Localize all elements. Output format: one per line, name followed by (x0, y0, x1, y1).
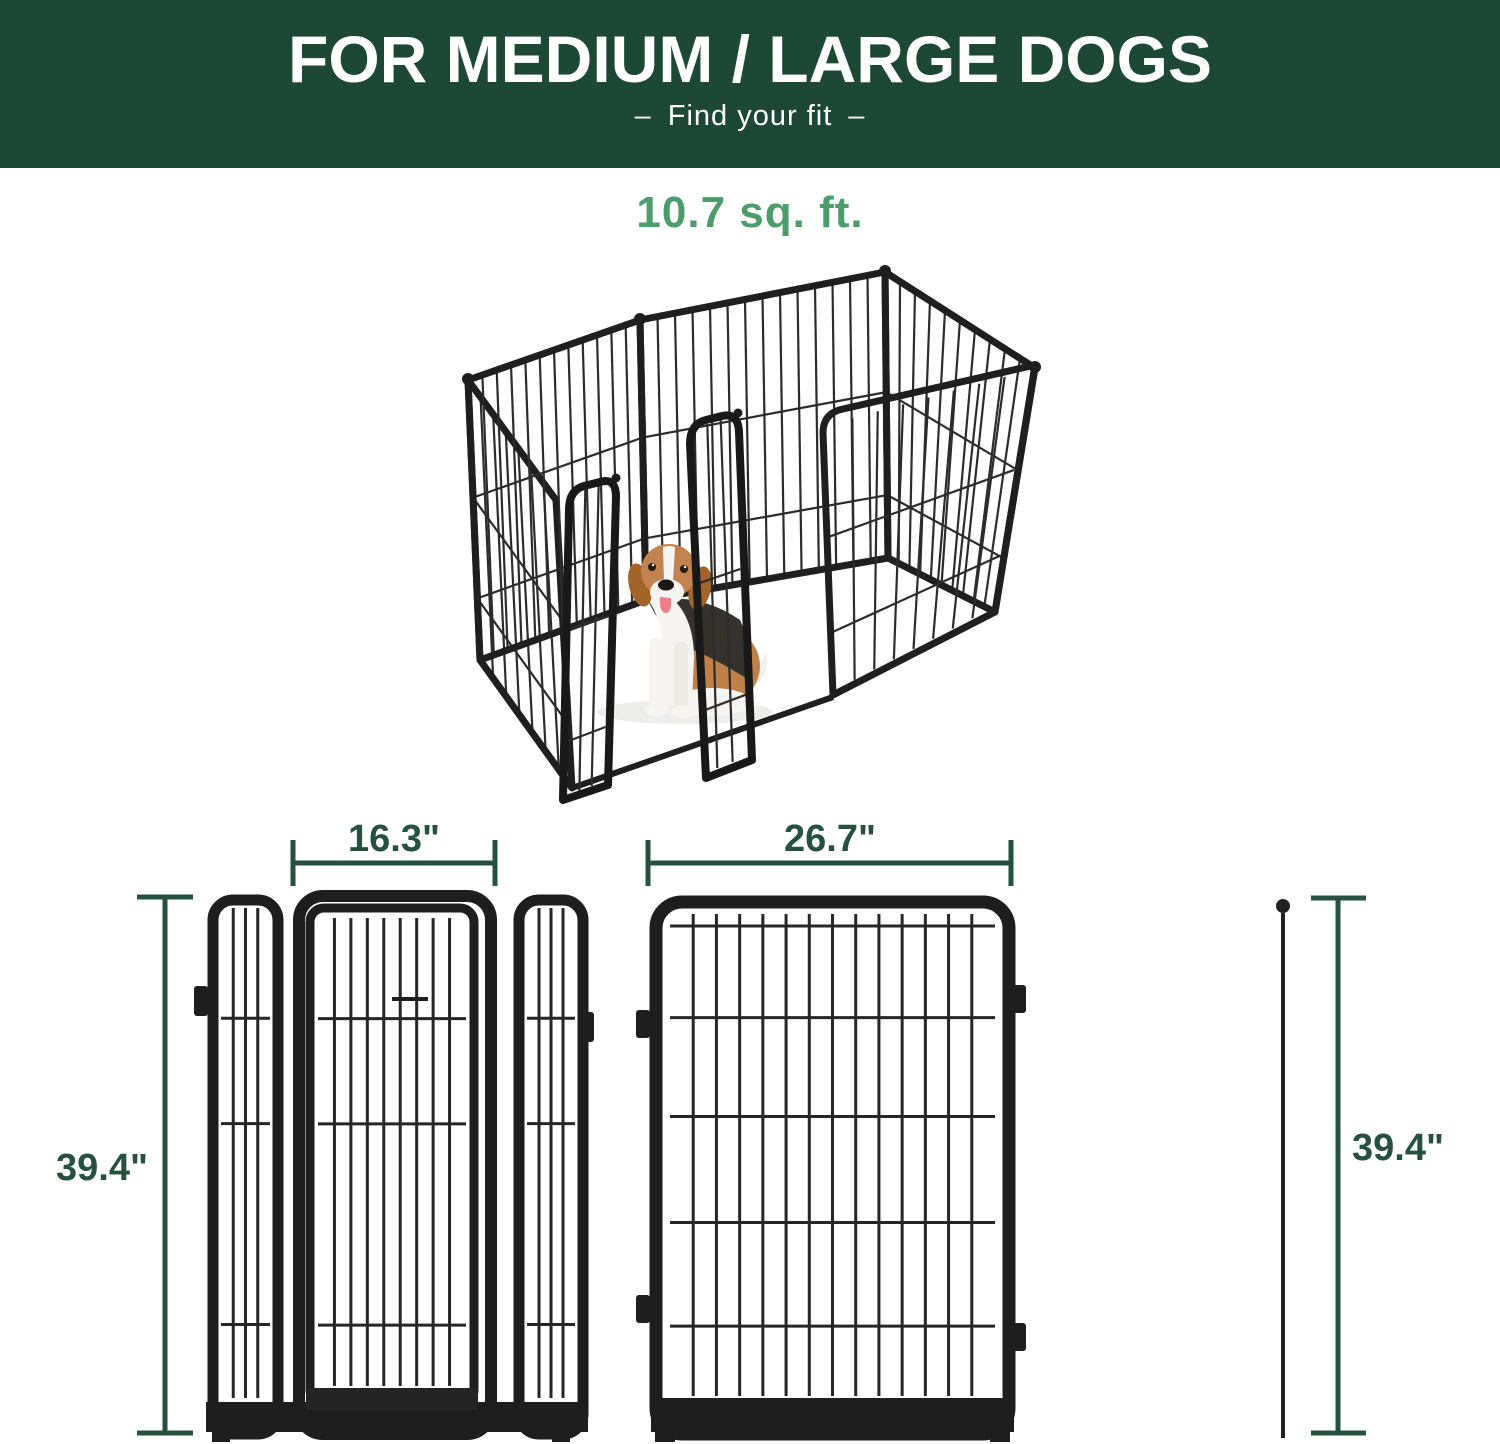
dimension-height-left: 39.4" (56, 897, 193, 1433)
playpen-3d-view (400, 235, 1100, 835)
door-width-label: 16.3" (348, 818, 440, 860)
dimension-panel-width: 26.7" (648, 818, 1011, 886)
door-bottom-rail (306, 1388, 478, 1410)
header-subtitle: – Find your fit – (0, 100, 1500, 133)
header-subtitle-text: Find your fit (668, 100, 833, 133)
large-panel-diagram: 26.7" (620, 815, 1120, 1444)
rod-height-diagram: 39.4" (1240, 815, 1460, 1444)
height-left-label: 39.4" (56, 1147, 148, 1189)
connector-tab-right (580, 1012, 594, 1042)
connector-rod (1276, 899, 1290, 1438)
door-panel-outer-frame (299, 896, 491, 1434)
height-right-label: 39.4" (1352, 1127, 1444, 1169)
dash-right-icon: – (848, 100, 865, 133)
header-banner: FOR MEDIUM / LARGE DOGS – Find your fit … (0, 0, 1500, 168)
dimension-door-width: 16.3" (293, 818, 495, 886)
dimension-height-right: 39.4" (1311, 898, 1444, 1433)
pen-area-label: 10.7 sq. ft. (0, 188, 1500, 238)
product-infographic: FOR MEDIUM / LARGE DOGS – Find your fit … (0, 0, 1500, 1444)
large-panel-bottom-rail (651, 1398, 1014, 1432)
panel-tab-right-upper (1012, 985, 1026, 1013)
panel-width-label: 26.7" (784, 818, 876, 860)
page-title: FOR MEDIUM / LARGE DOGS (0, 0, 1500, 92)
panel-tab-right-lower (1012, 1323, 1026, 1351)
door-assembly-front-view (194, 896, 594, 1442)
panel-tab-left-upper (636, 1010, 650, 1038)
door-assembly-diagram: 16.3" 39.4" (60, 815, 620, 1444)
connector-tab-left (194, 986, 208, 1016)
dog-nose (658, 580, 674, 591)
pen-front-panel (823, 365, 1035, 695)
large-panel-front-view (636, 902, 1026, 1442)
panel-tab-left-lower (636, 1295, 650, 1323)
dash-left-icon: – (635, 100, 652, 133)
